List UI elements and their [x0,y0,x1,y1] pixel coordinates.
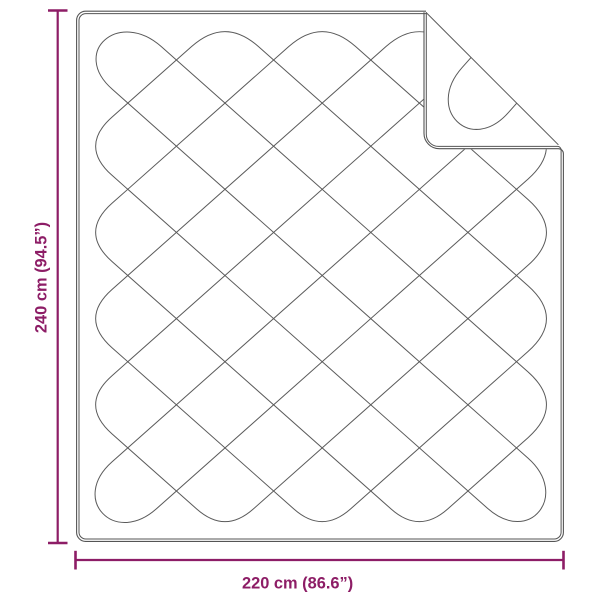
svg-text:220 cm (86.6”): 220 cm (86.6”) [242,575,353,593]
svg-text:240 cm (94.5”): 240 cm (94.5”) [33,222,51,333]
